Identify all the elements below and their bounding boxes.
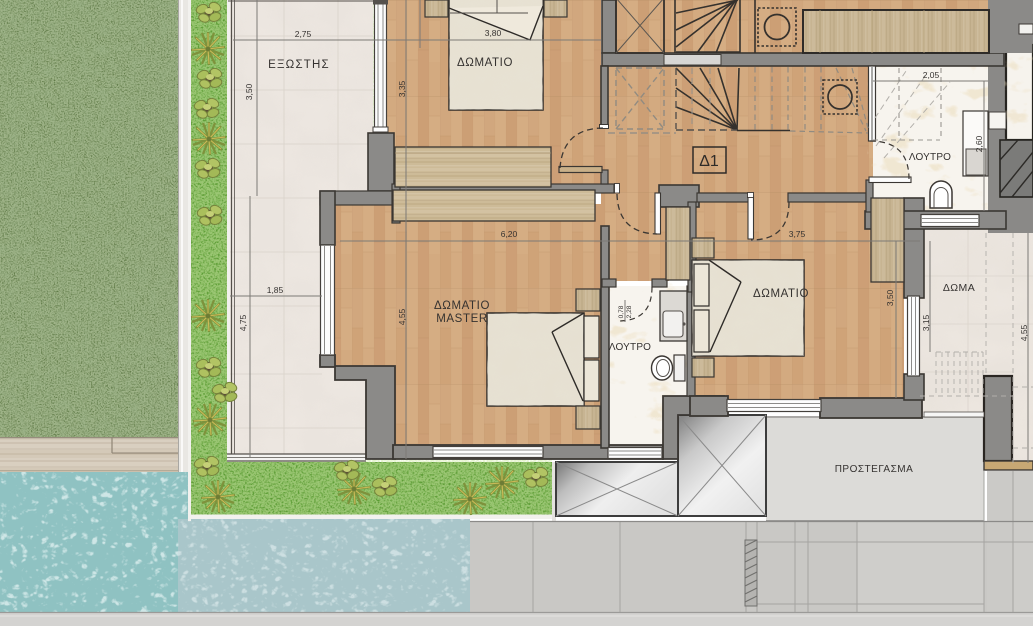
svg-text:ΔΩΜΑΤΙΟ: ΔΩΜΑΤΙΟ [457,57,513,69]
svg-text:3,50: 3,50 [885,289,895,306]
svg-text:0,78: 0,78 [618,305,625,318]
svg-text:3,50: 3,50 [244,83,254,100]
svg-text:4,75: 4,75 [238,314,248,331]
svg-text:2,05: 2,05 [923,70,940,80]
svg-text:3,15: 3,15 [921,314,931,331]
svg-text:2,75: 2,75 [295,29,312,39]
svg-text:ΠΡΟΣΤΕΓΑΣΜΑ: ΠΡΟΣΤΕΓΑΣΜΑ [835,464,914,475]
svg-text:4,55: 4,55 [1019,324,1029,341]
svg-text:3,80: 3,80 [485,28,502,38]
svg-text:ΔΩΜΑ: ΔΩΜΑ [943,282,975,294]
svg-text:3,35: 3,35 [397,80,407,97]
svg-text:1,85: 1,85 [267,285,284,295]
svg-text:MASTER: MASTER [436,313,488,325]
svg-text:4,55: 4,55 [397,308,407,325]
svg-text:Δ1: Δ1 [699,153,719,170]
svg-text:ΔΩΜΑΤΙΟ: ΔΩΜΑΤΙΟ [434,300,490,312]
svg-text:2,60: 2,60 [974,135,984,152]
svg-text:ΛΟΥΤΡΟ: ΛΟΥΤΡΟ [909,152,951,163]
svg-text:ΕΞΩΣΤΗΣ: ΕΞΩΣΤΗΣ [268,59,330,71]
svg-text:6,20: 6,20 [501,229,518,239]
svg-text:ΛΟΥΤΡΟ: ΛΟΥΤΡΟ [609,342,651,353]
svg-text:2,28: 2,28 [626,305,633,318]
svg-text:3,75: 3,75 [789,229,806,239]
svg-text:ΔΩΜΑΤΙΟ: ΔΩΜΑΤΙΟ [753,288,809,300]
